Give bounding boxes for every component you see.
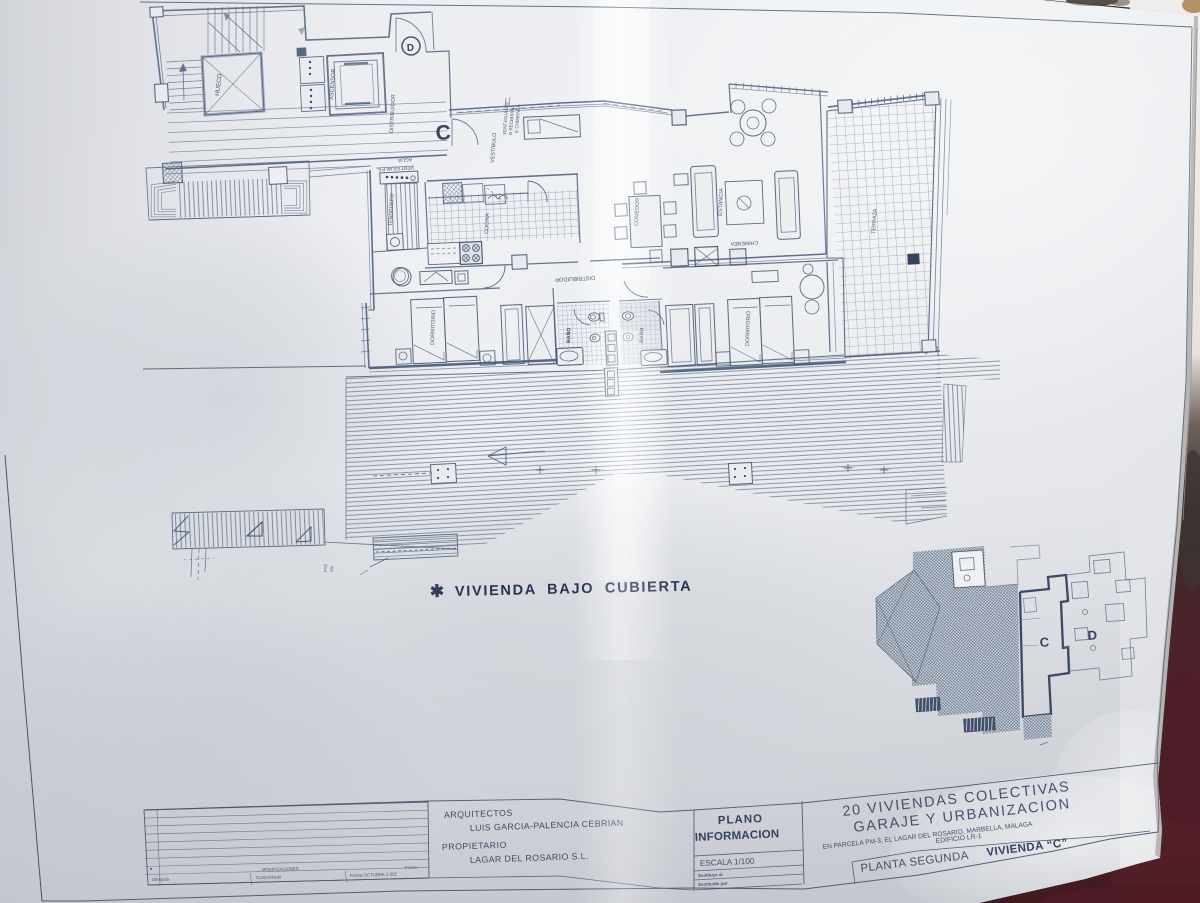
svg-text:D: D: [407, 43, 415, 54]
svg-text:2%: 2%: [329, 566, 334, 572]
svg-text:COCINA: COCINA: [484, 212, 491, 234]
svg-text:✱: ✱: [430, 582, 445, 601]
svg-text:■: ■: [150, 867, 152, 871]
svg-text:C: C: [1039, 634, 1050, 650]
svg-text:DORMITORIO: DORMITORIO: [430, 310, 437, 345]
svg-text:ESTANCIA: ESTANCIA: [718, 188, 725, 216]
svg-text:DORMITORIO: DORMITORIO: [745, 311, 752, 346]
svg-text:AGUA: AGUA: [397, 156, 412, 163]
svg-text:MODIFICACIONES: MODIFICACIONES: [262, 866, 299, 872]
svg-text:C: C: [435, 121, 451, 145]
svg-text:PLANO: PLANO: [718, 813, 764, 827]
svg-text:BAÑO: BAÑO: [565, 328, 573, 344]
svg-text:D: D: [1087, 627, 1097, 643]
svg-text:Fecha: Fecha: [405, 865, 417, 870]
svg-text:Dibujado: Dibujado: [152, 877, 170, 882]
svg-text:Comprobado: Comprobado: [256, 874, 282, 880]
svg-text:PTE: PTE: [323, 564, 328, 573]
